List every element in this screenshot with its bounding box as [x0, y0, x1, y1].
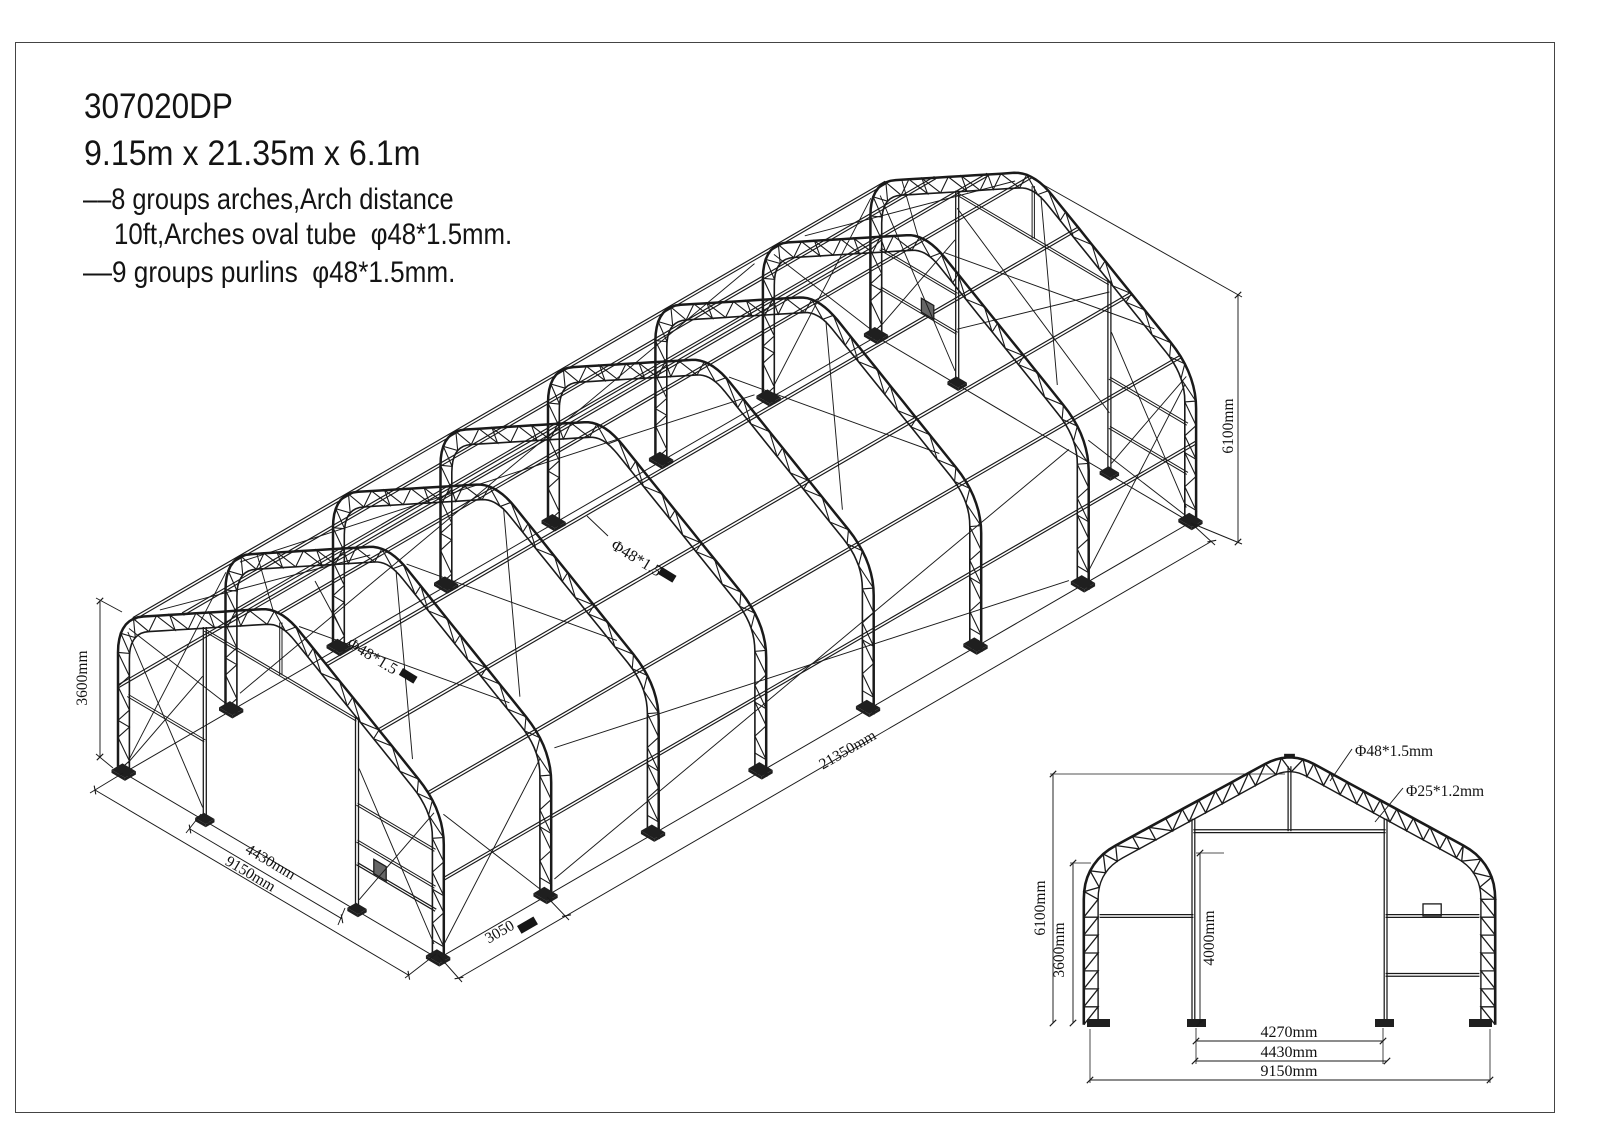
svg-text:3600mm: 3600mm	[1051, 922, 1068, 977]
svg-text:Φ48*1.5: Φ48*1.5	[344, 635, 400, 678]
svg-text:4430mm: 4430mm	[1261, 1044, 1318, 1061]
svg-text:9150mm: 9150mm	[1261, 1063, 1318, 1080]
svg-text:6100mm: 6100mm	[1032, 880, 1049, 935]
svg-text:3600mm: 3600mm	[74, 650, 91, 705]
svg-text:3050: 3050	[482, 917, 518, 947]
svg-text:6100mm: 6100mm	[1220, 398, 1237, 453]
svg-text:Φ48*1.5mm: Φ48*1.5mm	[1355, 743, 1433, 760]
svg-text:4270mm: 4270mm	[1261, 1024, 1318, 1041]
svg-text:Φ48*1.5: Φ48*1.5	[608, 537, 664, 580]
svg-text:Φ25*1.2mm: Φ25*1.2mm	[1406, 783, 1484, 800]
svg-text:4000mm: 4000mm	[1201, 910, 1218, 965]
